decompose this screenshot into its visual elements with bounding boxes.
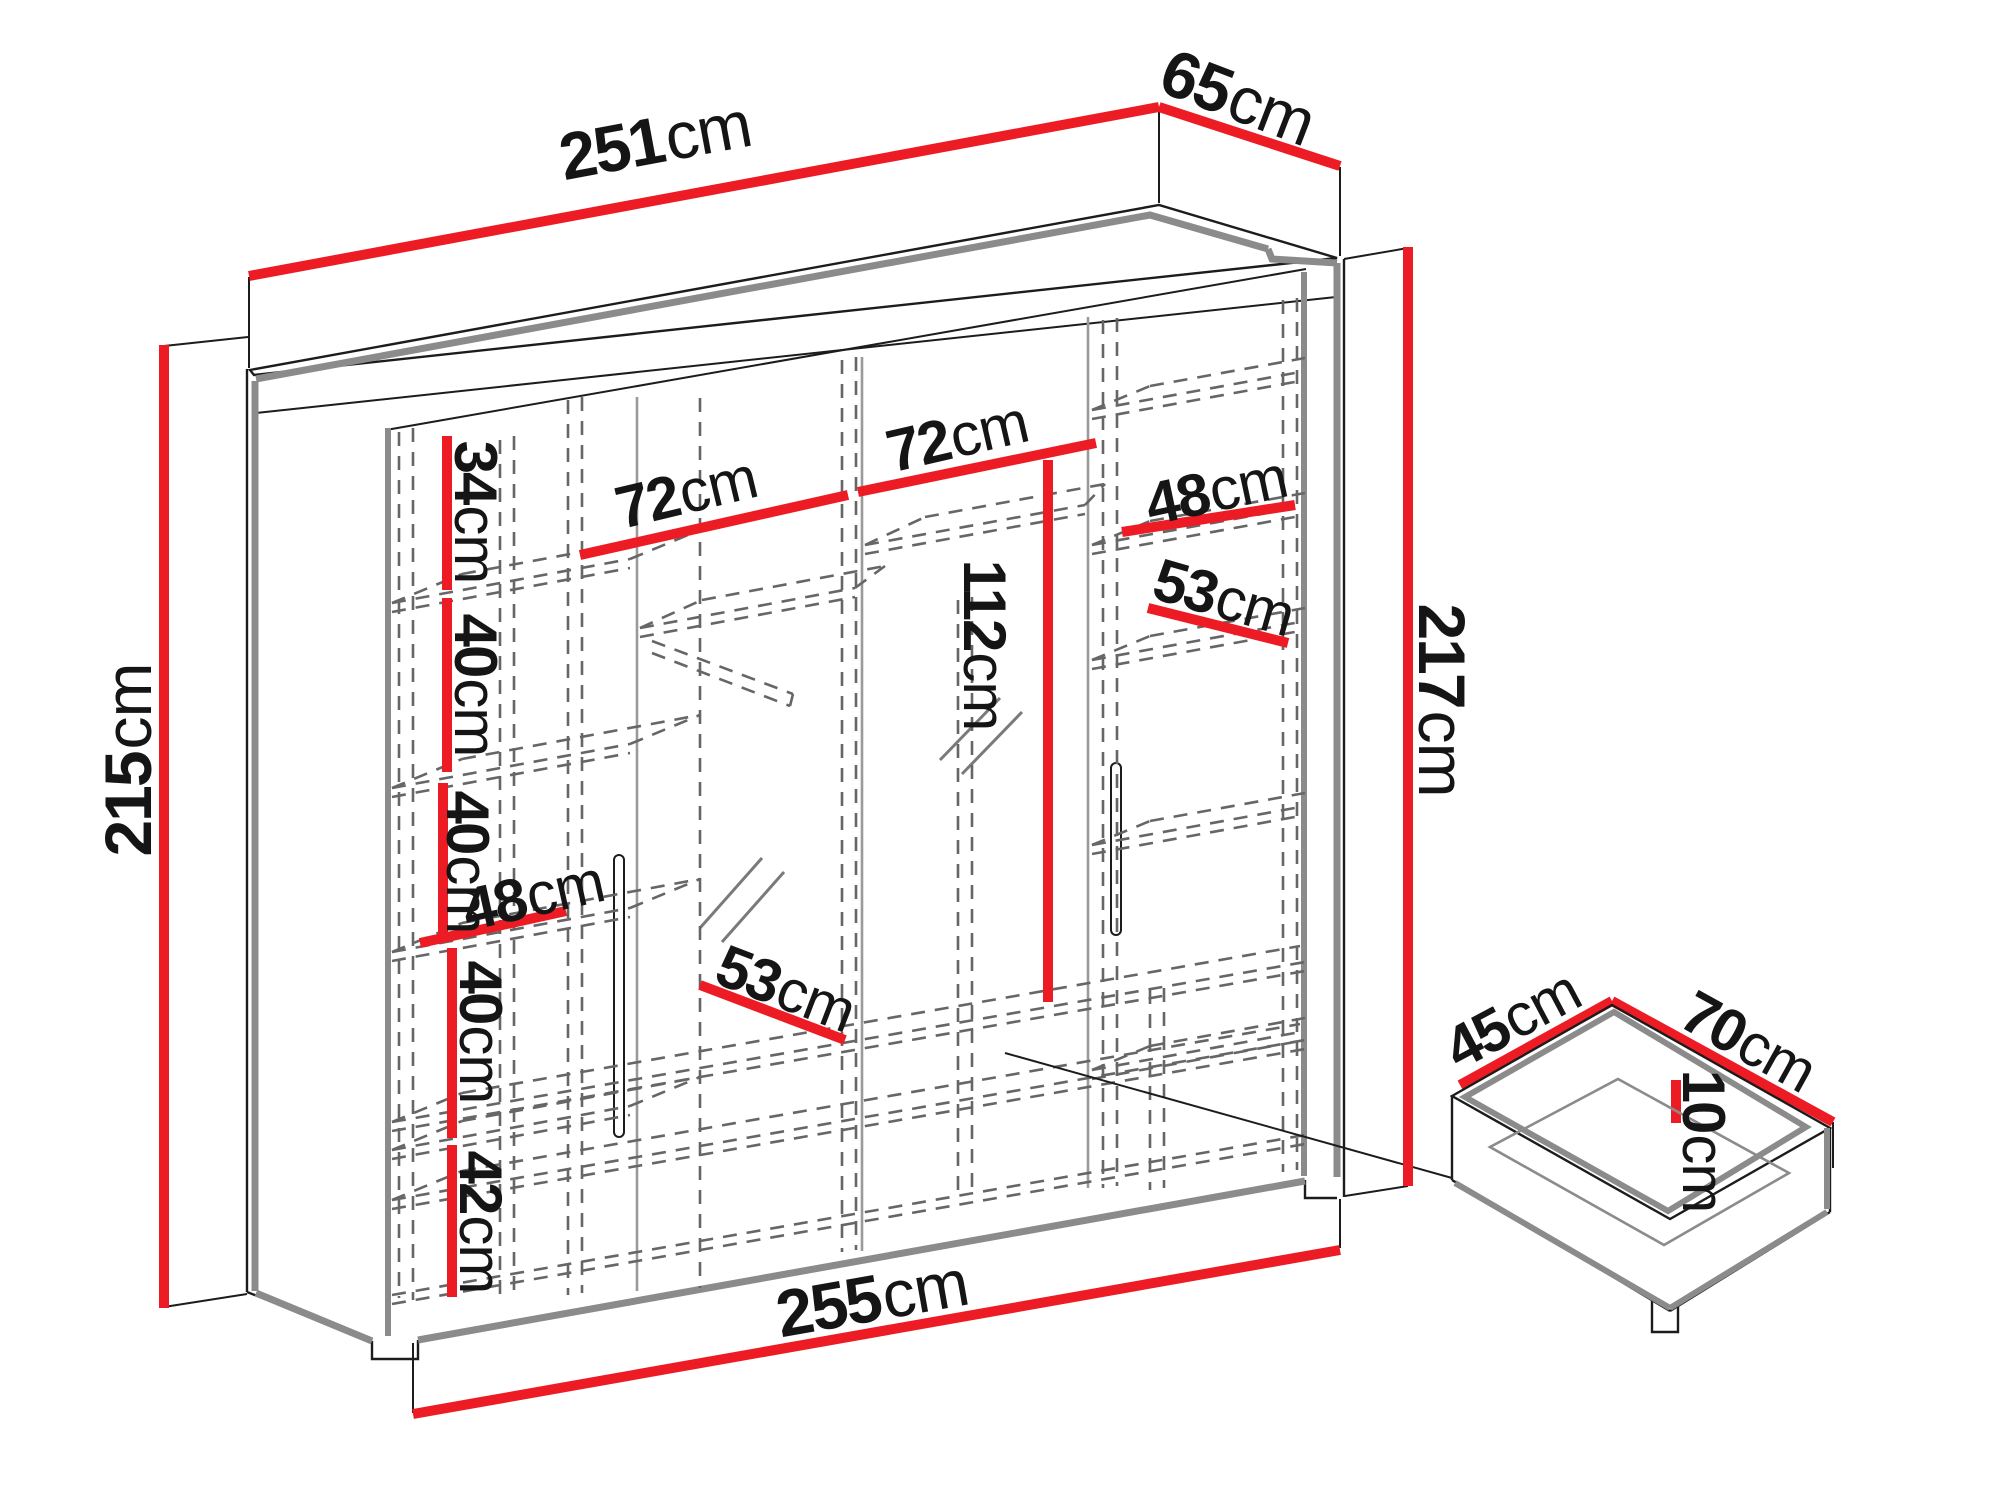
clothes-rail-dashed bbox=[652, 641, 793, 694]
dim-label-right-shelf-width: 48cm bbox=[1139, 442, 1293, 537]
dim-label-hanging-height: 112cm bbox=[952, 560, 1019, 731]
dim-label-left-height: 215cm bbox=[91, 663, 165, 856]
centre-right-shelf-dashed bbox=[865, 484, 1105, 554]
dim-label-right-height: 217cm bbox=[1405, 603, 1479, 796]
dim-label-left-section-1: 34cm bbox=[443, 441, 510, 584]
centre-left-shelf-dashed bbox=[640, 566, 885, 706]
dim-label-right-shelf-depth: 53cm bbox=[1146, 545, 1302, 649]
dim-label-left-section-5: 42cm bbox=[448, 1151, 515, 1294]
dim-label-left-section-4: 40cm bbox=[448, 961, 515, 1104]
diagram-page: 251cm 65cm 215cm 217cm 255cm 34cm 40cm 4… bbox=[0, 0, 2000, 1499]
drawer-leader-line bbox=[1005, 1053, 1452, 1178]
door-handle-icon bbox=[614, 855, 624, 1137]
dim-label-top-depth: 65cm bbox=[1151, 34, 1325, 160]
interior-structure-dashed bbox=[392, 298, 1305, 1304]
dimension-lines bbox=[164, 107, 1833, 1414]
dim-label-top-width: 251cm bbox=[553, 86, 756, 194]
dim-label-drawer-height: 10cm bbox=[1671, 1070, 1738, 1213]
dim-label-bottom-width: 255cm bbox=[770, 1245, 973, 1351]
clothes-rail-dashed bbox=[790, 694, 793, 706]
witness-lines bbox=[164, 108, 1833, 1413]
dim-label-left-section-2: 40cm bbox=[443, 614, 510, 757]
wardrobe-diagram-canvas: 251cm 65cm 215cm 217cm 255cm 34cm 40cm 4… bbox=[0, 0, 2000, 1499]
clothes-rail-dashed bbox=[652, 653, 790, 706]
cabinet-outline bbox=[247, 205, 1344, 1359]
mirror-glyph-icon bbox=[700, 858, 762, 928]
